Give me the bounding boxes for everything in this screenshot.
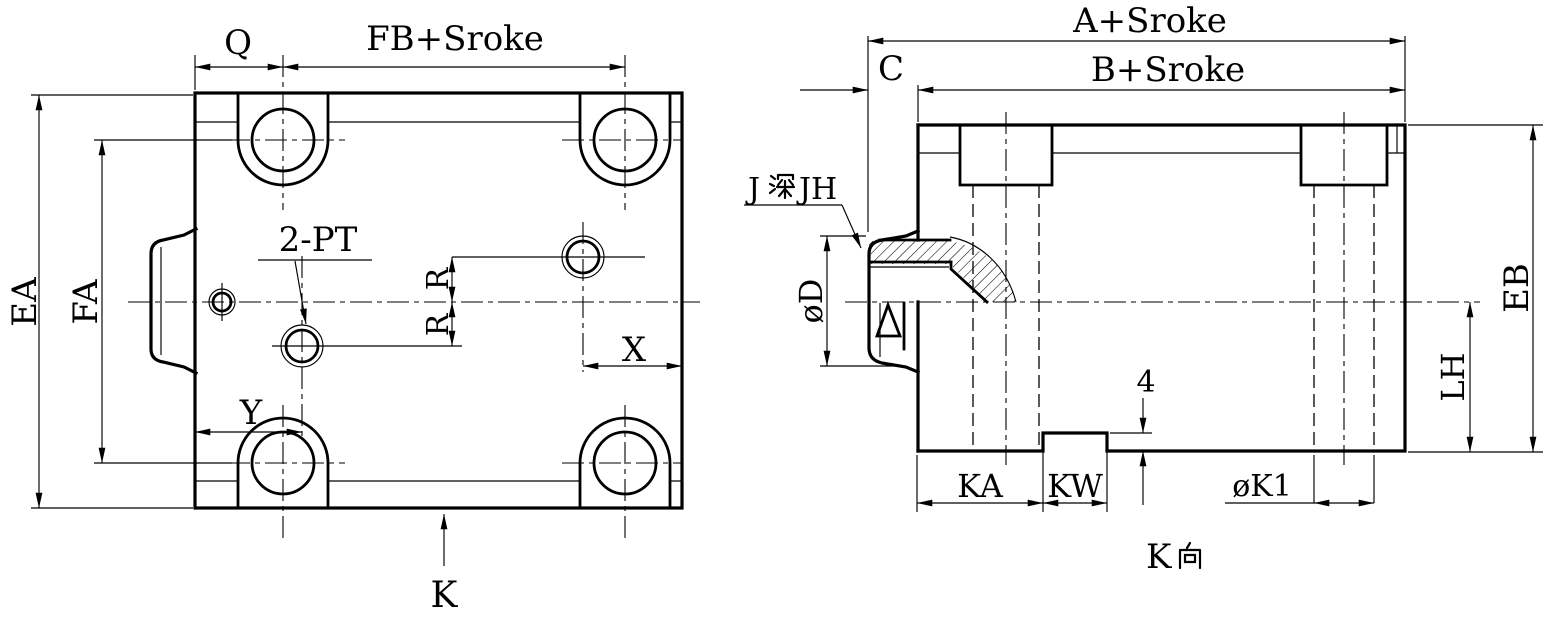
counterbore-label-prefix: J [745, 172, 760, 207]
dim-label-fb-stroke: FB+Sroke [366, 19, 544, 59]
counterbore-label: J JH [745, 172, 837, 207]
counterbore-label-leader [842, 205, 861, 248]
plan-body-outline [195, 93, 682, 508]
counterbore-label-suffix: JH [796, 172, 837, 207]
side-view-title-prefix: K [1146, 537, 1172, 577]
port-label-leader [295, 261, 306, 324]
dim-label-y: Y [239, 393, 263, 433]
side-seat-line [918, 125, 1405, 153]
cjk-xiang-glyph [1180, 543, 1200, 568]
dim-label-b-stroke: B+Sroke [1091, 50, 1245, 90]
dim-label-a-stroke: A+Sroke [1072, 1, 1227, 41]
side-hole-centerlines [1006, 112, 1344, 465]
side-view: A+Sroke B+Sroke C øD EB LH KA KW 4 øK1 J… [744, 1, 1543, 577]
dim-label-q: Q [224, 23, 252, 63]
port-label-2pt: 2-PT [279, 220, 358, 260]
technical-drawing: Q FB+Sroke EA FA 2-PT R R X Y K [0, 0, 1561, 623]
dim-label-kw: KW [1047, 467, 1103, 505]
plan-view: Q FB+Sroke EA FA 2-PT R R X Y K [5, 19, 700, 616]
dim-label-ka: KA [957, 467, 1004, 505]
side-view-title: K [1146, 537, 1200, 577]
dim-label-c: C [878, 49, 904, 89]
drawing-canvas: Q FB+Sroke EA FA 2-PT R R X Y K [0, 0, 1561, 623]
dim-label-ea: EA [5, 277, 45, 327]
dim-label-r-upper: R [421, 266, 456, 290]
dim-label-eb: EB [1497, 263, 1537, 313]
dim-label-notch-depth: 4 [1136, 365, 1155, 400]
dim-label-dia-k1: øK1 [1232, 469, 1292, 504]
cjk-shen-glyph [770, 175, 794, 198]
dim-label-fa: FA [66, 279, 106, 325]
dim-label-r-lower: R [421, 312, 456, 336]
k-view-arrow-label: K [431, 575, 459, 616]
dim-label-x: X [622, 330, 647, 370]
mount-hole-centerlines-vertical [283, 55, 625, 542]
section-hatch [869, 241, 1016, 302]
plan-boss-outline [151, 229, 196, 373]
dim-label-lh: LH [1434, 352, 1472, 401]
dim-label-dia-d: øD [792, 279, 830, 324]
